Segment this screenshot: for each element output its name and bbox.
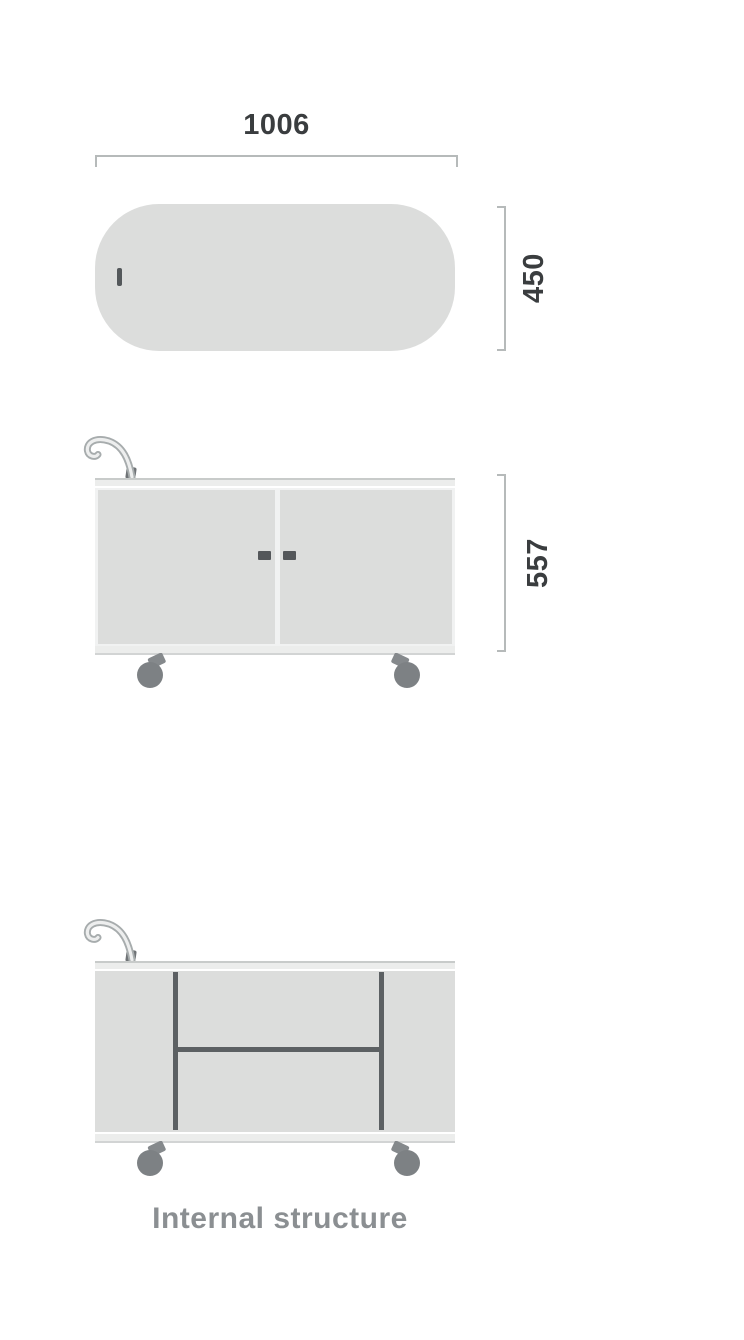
handle-mark — [117, 268, 122, 286]
width-dimension-label: 1006 — [95, 110, 458, 140]
caster-icon — [130, 653, 174, 689]
width-dimension-line — [95, 155, 458, 167]
left-door — [98, 490, 275, 644]
handle-hook-icon — [80, 913, 142, 963]
height-dimension-label: 557 — [523, 533, 553, 593]
caster-icon — [383, 1141, 427, 1177]
right-door — [280, 490, 452, 644]
handle-hook-icon — [80, 430, 142, 480]
left-door-handle — [258, 551, 271, 560]
caster-icon — [130, 1141, 174, 1177]
depth-dimension-bracket — [497, 206, 506, 351]
product-dimension-diagram: 1006 450 — [0, 0, 744, 1340]
internal-top-edge — [95, 961, 455, 969]
shelf-divider — [173, 1047, 384, 1052]
depth-dimension-label: 450 — [519, 248, 549, 308]
top-view-panel — [95, 204, 455, 351]
height-dimension-bracket — [497, 474, 506, 652]
front-top-edge — [95, 478, 455, 486]
internal-structure-caption: Internal structure — [95, 1203, 465, 1237]
caster-icon — [383, 653, 427, 689]
right-door-handle — [283, 551, 296, 560]
